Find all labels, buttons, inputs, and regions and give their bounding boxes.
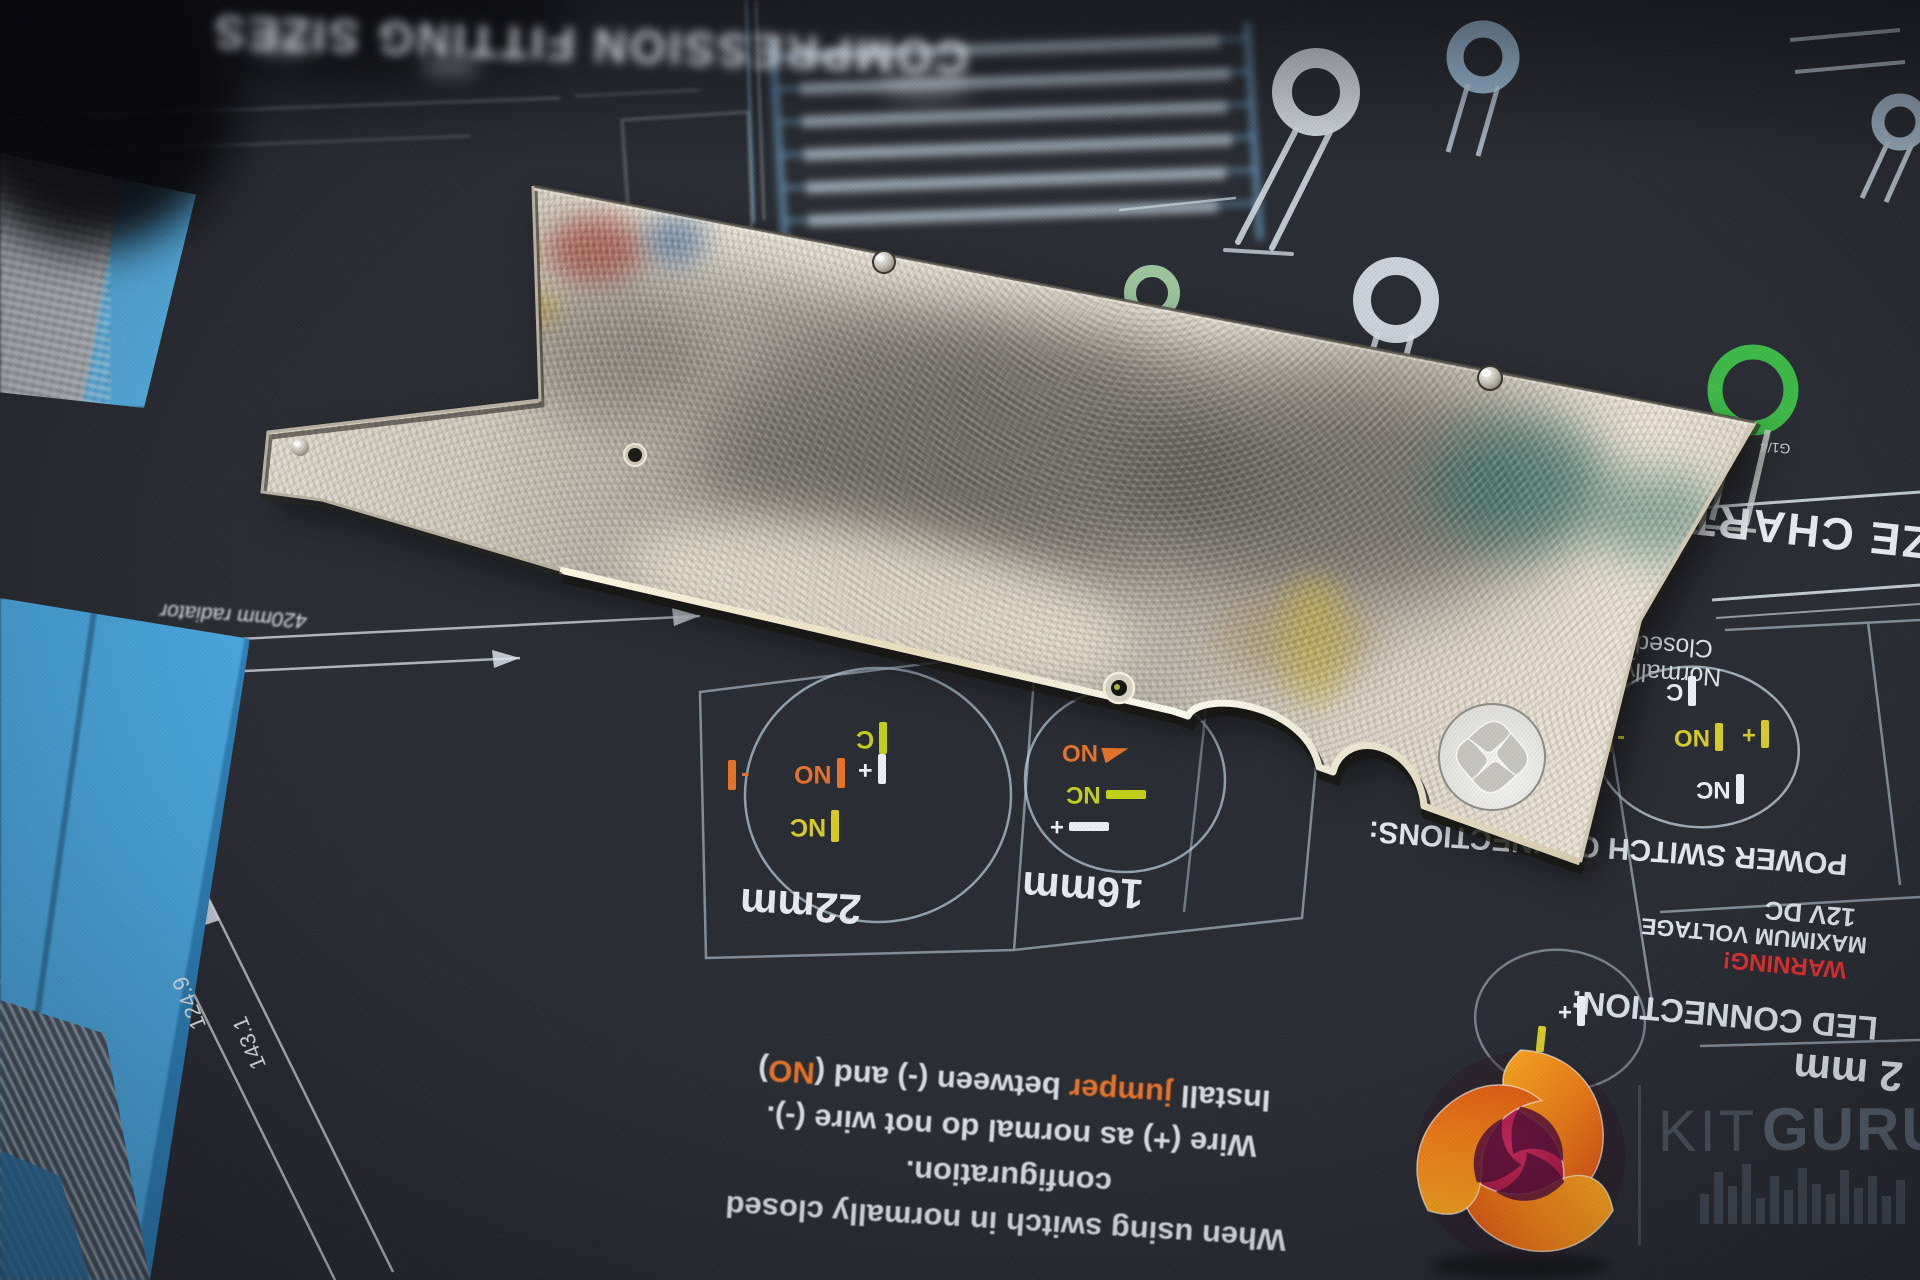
screw-1 [873,251,895,273]
kitguru-swirl-logo [1398,1042,1643,1280]
watermark-guru: GURU [1762,1095,1920,1164]
plate-hole-1 [624,444,646,466]
plate-hole-2 [1104,673,1134,703]
screw-tab [291,438,309,456]
watermark-kit: KIT [1658,1098,1757,1165]
ek-logo-badge [1435,700,1548,813]
photo-scene: COMPRESSION FITTING SIZES ZE CHART 420mm… [0,0,1920,1280]
screw-2 [1478,366,1502,390]
watermark-barcode [1700,1158,1920,1224]
